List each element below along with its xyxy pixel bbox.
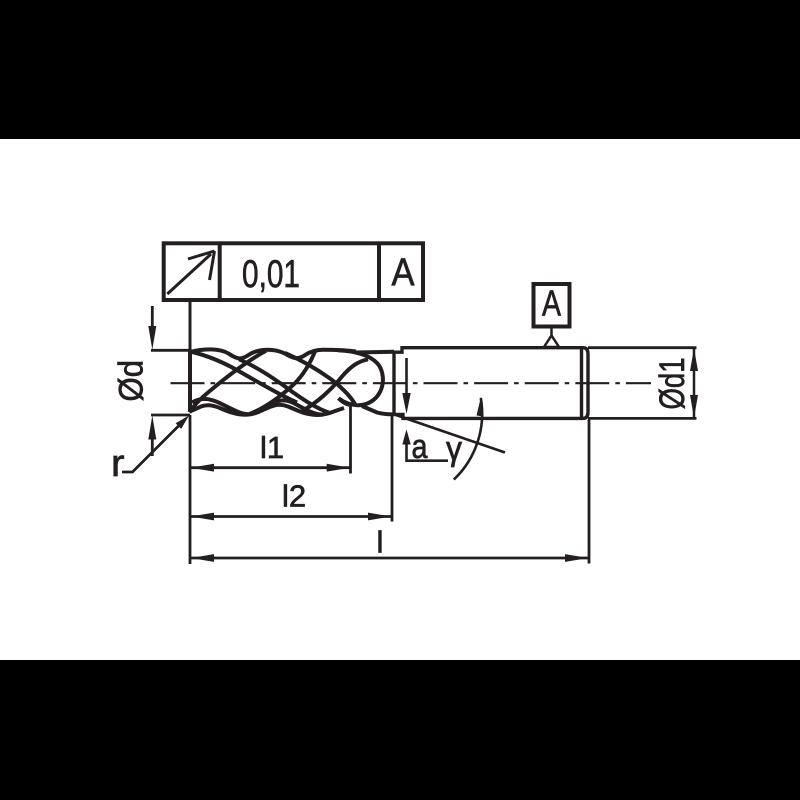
- svg-text:A: A: [392, 252, 415, 295]
- svg-text:l: l: [377, 525, 384, 560]
- svg-text:l2: l2: [282, 479, 306, 514]
- svg-text:Ød1: Ød1: [653, 358, 692, 410]
- svg-text:γ: γ: [446, 430, 462, 468]
- svg-text:0,01: 0,01: [242, 253, 300, 296]
- svg-text:l1: l1: [260, 430, 284, 465]
- svg-text:a: a: [412, 428, 428, 466]
- svg-text:A: A: [542, 283, 561, 324]
- svg-text:Ød: Ød: [113, 360, 151, 402]
- svg-text:r: r: [111, 443, 125, 485]
